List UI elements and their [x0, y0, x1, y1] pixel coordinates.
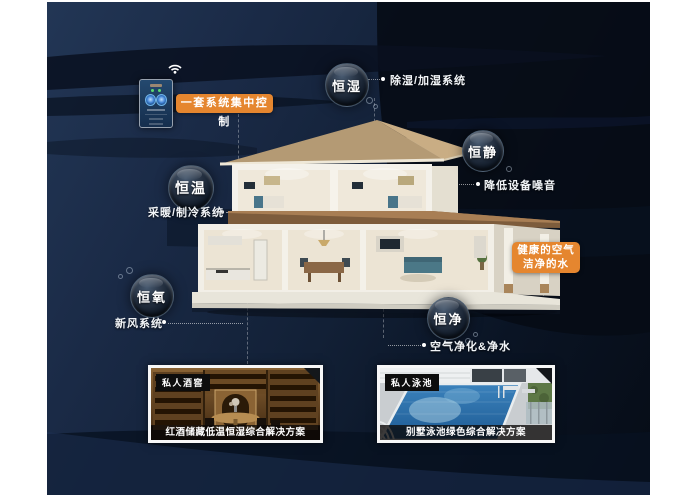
decor-bubble — [126, 267, 133, 274]
healthy-air-line: 健康的空气 — [512, 243, 580, 257]
poster-frame: 一套系统集中控制 恒湿 恒静 恒温 恒氧 恒净 除湿/加湿系统 降低设备噪音 采… — [0, 0, 700, 497]
swimming-pool-card: 私人泳池 别墅泳池绿色综合解决方案 — [377, 365, 555, 443]
panel-status-leds — [149, 89, 163, 92]
bubble-constant-purity: 恒净 — [427, 297, 470, 340]
panel-readout-row — [149, 118, 163, 120]
label-fresh-air-system: 新风系统 — [115, 315, 163, 331]
corner-ribbon-icon — [304, 368, 320, 384]
corner-ribbon-icon — [536, 368, 552, 384]
decor-bubble — [118, 274, 123, 279]
wine-cellar-card: 私人酒窖 红酒储藏低温恒湿综合解决方案 — [148, 365, 323, 443]
bubble-constant-humidity: 恒湿 — [325, 63, 369, 107]
healthy-air-water-box: 健康的空气 洁净的水 — [512, 242, 580, 273]
leader-line-purity — [388, 345, 421, 346]
panel-dials — [145, 94, 167, 106]
dial-icon — [156, 94, 167, 106]
swimming-pool-tag: 私人泳池 — [385, 374, 439, 391]
wifi-icon — [167, 59, 183, 74]
leader-line-humidity — [368, 79, 380, 80]
panel-readout-row — [149, 123, 163, 125]
swimming-pool-caption: 别墅泳池绿色综合解决方案 — [380, 425, 552, 440]
leader-line-oxygen — [168, 323, 243, 324]
leader-dot-quiet — [476, 182, 480, 186]
decor-bubble — [366, 97, 373, 104]
decor-bubble — [506, 166, 512, 172]
poster-canvas: 一套系统集中控制 恒湿 恒静 恒温 恒氧 恒净 除湿/加湿系统 降低设备噪音 采… — [47, 2, 650, 495]
decor-bubble — [373, 104, 378, 109]
smart-control-panel — [139, 79, 173, 128]
bubble-constant-oxygen: 恒氧 — [130, 274, 174, 318]
label-dehumidify-humidify-system: 除湿/加湿系统 — [390, 72, 466, 88]
label-reduce-equipment-noise: 降低设备噪音 — [484, 177, 556, 193]
central-control-banner: 一套系统集中控制 — [176, 94, 273, 113]
wine-cellar-caption: 红酒储藏低温恒湿综合解决方案 — [151, 425, 320, 440]
panel-divider — [145, 114, 167, 115]
decor-bubble — [473, 332, 478, 337]
leader-dot-humidity — [381, 77, 385, 81]
house-cutaway-graphic — [192, 108, 572, 318]
leader-dot-purity — [422, 343, 426, 347]
bubble-constant-quiet: 恒静 — [462, 130, 504, 172]
wine-cellar-tag: 私人酒窖 — [156, 374, 210, 391]
panel-title-bar — [150, 84, 162, 87]
dial-icon — [145, 94, 156, 106]
label-air-water-purification: 空气净化&净水 — [430, 338, 511, 354]
clean-water-line: 洁净的水 — [512, 257, 580, 271]
label-heating-cooling-system: 采暖/制冷系统 — [148, 204, 224, 220]
panel-readout-row — [147, 109, 165, 111]
